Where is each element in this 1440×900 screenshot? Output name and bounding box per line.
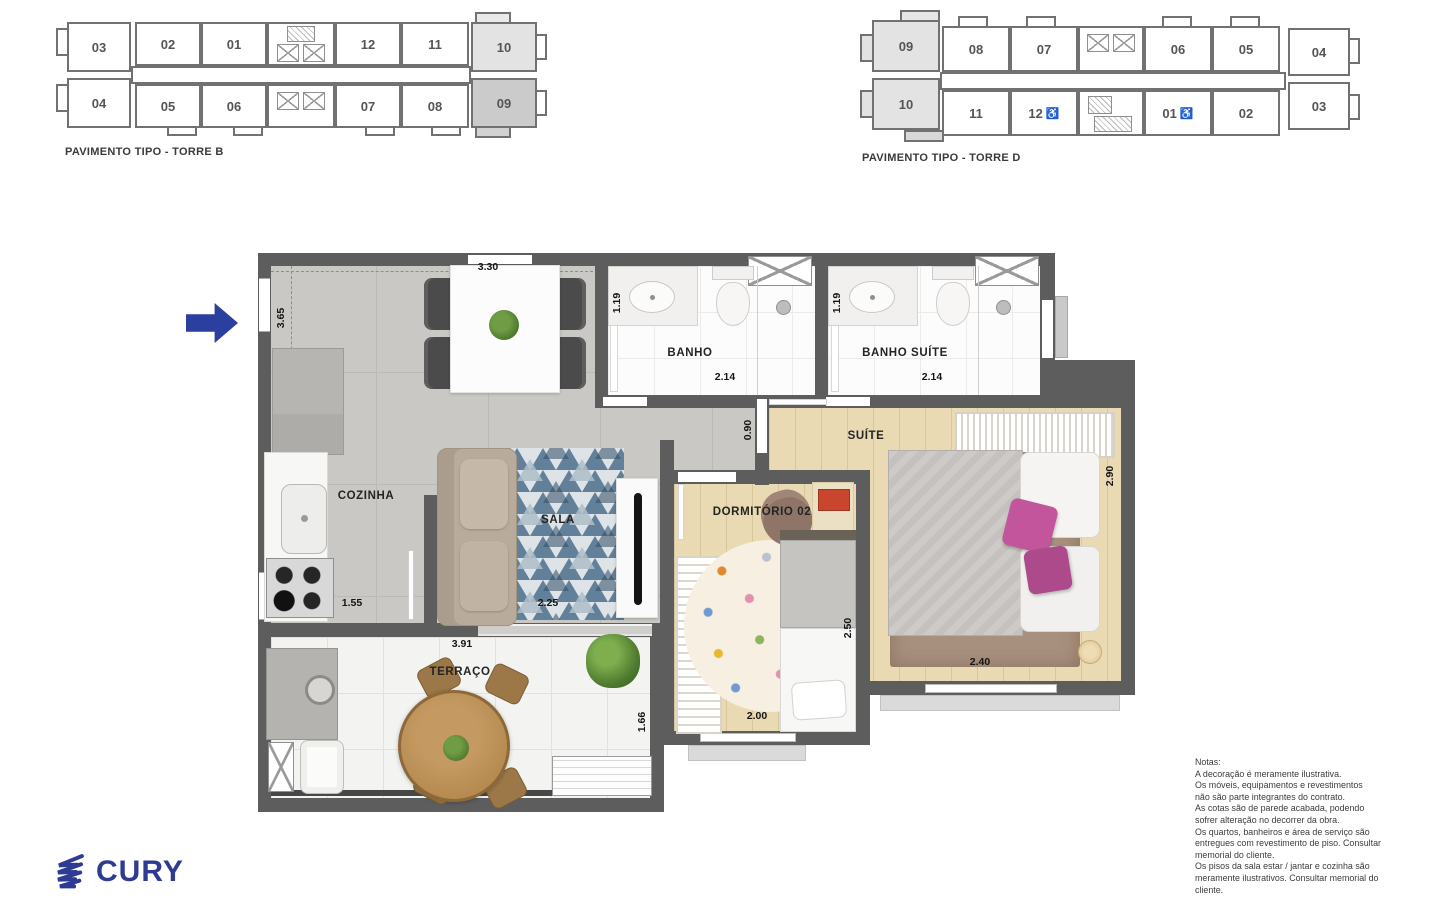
tv-console [616,478,658,618]
wall-segment [258,253,1055,266]
toilet-tank [932,266,974,280]
plant-icon [489,310,519,340]
suite-window [925,684,1057,693]
cury-logo-icon [48,852,90,892]
pillow [791,679,848,721]
notes-line: Os móveis, equipamentos e revestimentos [1195,780,1415,792]
toilet-tank [712,266,754,280]
room-label-suite: SUÍTE [848,430,885,442]
notes-line: Os pisos da sala estar / jantar e cozinh… [1195,861,1415,873]
sala-rug [504,448,624,620]
window [259,278,270,332]
stove [266,558,334,618]
notes-line: memorial do cliente. [1195,850,1415,862]
cury-logo-text: CURY [96,855,184,889]
suite-door-leaf [769,399,827,405]
accent-pillow [1023,545,1073,595]
dim-label: 2.40 [970,656,990,668]
room-label-banho: BANHO [667,347,712,359]
drain [650,295,655,300]
wall-segment [856,470,870,745]
notes-line: As cotas são de parede acabada, podendo [1195,803,1415,815]
dim-label: 1.66 [636,712,648,732]
banho-door-opening [603,397,647,406]
dim-label: 2.14 [922,371,942,383]
dormitorio-door-leaf [678,484,684,540]
banho-suite-door-opening [826,397,870,406]
toilet [936,282,970,326]
dormitorio-window [700,733,796,742]
dim-label: 0.90 [742,420,754,440]
wall-segment [660,440,674,745]
notes-line: meramente ilustrativos. Consultar memori… [1195,873,1415,885]
shower-head [996,300,1011,315]
sofa-cushion [460,459,508,529]
notes-line: não são parte integrantes do contrato. [1195,792,1415,804]
wall-segment [424,495,437,623]
dim-label: 2.00 [747,710,767,722]
notes-line: cliente. [1195,885,1415,897]
shower-glass [978,266,979,395]
dormitorio-bed-sheet [780,628,856,732]
notes-title: Notas: [1195,757,1415,769]
wall-segment [1121,360,1135,695]
cury-logo: CURY [48,852,184,892]
dim-label: 3.65 [275,308,287,328]
notes-line: A decoração é meramente ilustrativa. [1195,769,1415,781]
room-label-cozinha: COZINHA [338,490,395,502]
dormitorio-bed-blanket [780,540,856,628]
room-label-terraco: TERRAÇO [429,666,490,678]
suite-window-sill [880,695,1120,711]
dim-label: 2.90 [1104,466,1116,486]
wall-segment [815,253,828,408]
dormitorio-window-sill [688,745,806,761]
vent-x-icon [975,256,1039,286]
room-label-dormitorio-02: DORMITÓRIO 02 [713,506,812,518]
tv [634,493,642,605]
terraco-table [398,690,510,802]
side-door-opening [1042,300,1053,358]
notes-line: sofrer alteração no decorrer da obra. [1195,815,1415,827]
louver-x-icon [268,742,294,792]
toilet [716,282,750,326]
ac-condenser [552,756,652,796]
bed-headboard [780,530,856,540]
dim-label: 3.30 [478,261,498,273]
suite-bed-blanket [888,450,1023,636]
dim-label: 1.55 [342,597,362,609]
shower-glass [757,266,758,395]
dormitorio-door-opening [678,472,736,482]
laundry-sink [300,740,344,794]
dim-label: 3.91 [452,638,472,650]
shower-head [776,300,791,315]
sofa-cushion [460,541,508,611]
laundry-cabinet [266,648,338,740]
plant-icon [586,634,640,688]
dim-label: 1.19 [831,293,843,313]
faucet [301,515,308,522]
dim-label: 2.50 [842,618,854,638]
suite-door-opening [757,399,767,453]
washer-door [305,675,335,705]
dim-label: 2.14 [715,371,735,383]
room-label-banho-suite: BANHO SUÍTE [862,347,948,359]
side-door-leaf [1055,296,1068,358]
room-label-sala: SALA [541,514,575,526]
sofa [437,448,517,626]
wall-segment [595,253,608,408]
notes-line: entregues com revestimento de piso. Cons… [1195,838,1415,850]
books [818,489,850,511]
fridge [272,348,344,455]
bedside-lamp [1078,640,1102,664]
cozinha-door-leaf [408,550,414,620]
dim-label: 1.19 [611,293,623,313]
dim-label: 2.25 [538,597,558,609]
notes-line: Os quartos, banheiros e área de serviço … [1195,827,1415,839]
drain [870,295,875,300]
notes-block: Notas: A decoração é meramente ilustrati… [1195,757,1415,896]
plant-icon [443,735,469,761]
